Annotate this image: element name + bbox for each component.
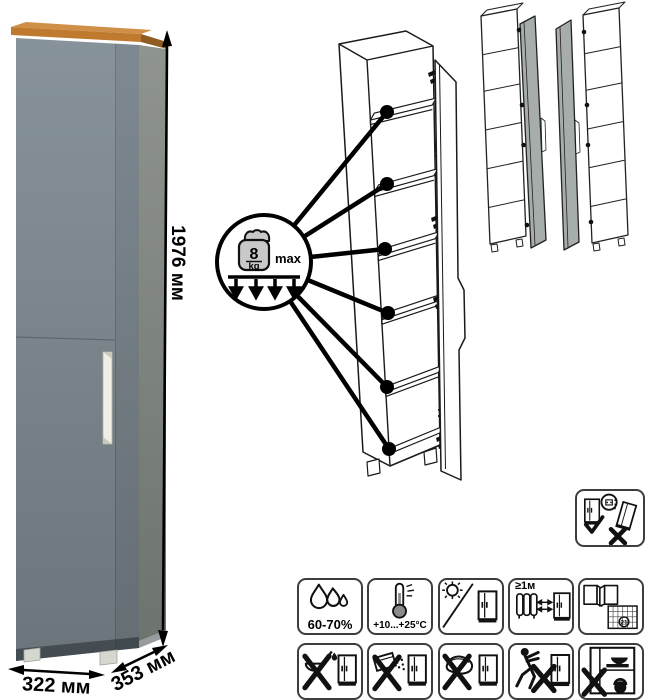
sun-icon — [440, 580, 502, 633]
kettlebell-body — [614, 681, 626, 693]
icon-tile-humidity: 60-70% — [297, 578, 363, 635]
scouring-pad-crossed-icon — [440, 645, 502, 698]
load-qualifier: max — [275, 251, 302, 266]
icon-tile-ventilation: 21 — [578, 578, 644, 635]
cabinet-foot — [24, 648, 40, 662]
cabinet-open-drawing — [339, 31, 465, 480]
door-variant-drawings — [481, 2, 628, 252]
icon-tile-no-overloading — [578, 643, 644, 700]
variant-door-handle — [541, 118, 546, 152]
wardrobe-glyph — [479, 591, 497, 622]
wardrobe-glyph — [479, 655, 496, 685]
wardrobe-glyph — [551, 655, 569, 686]
cabinet-foot — [100, 650, 117, 665]
width-arrowhead-left — [8, 665, 24, 675]
variant-door-right — [481, 3, 546, 252]
door-handle — [103, 352, 112, 444]
front-right-stile — [116, 43, 139, 650]
height-dimension-label: 1976 мм — [167, 225, 188, 301]
open-windows-calendar-icon: 21 — [580, 580, 642, 633]
variant-door-left — [556, 2, 628, 251]
icon-tile-temperature: +10...+25°C — [367, 578, 433, 635]
cabinet-side-panel — [139, 45, 166, 641]
calendar-day-label: 21 — [620, 619, 628, 626]
wardrobe-glyph — [408, 655, 425, 685]
height-arrowhead-top — [162, 30, 172, 47]
person-pushing-crossed-icon — [510, 645, 572, 698]
drawing-foot — [367, 459, 380, 476]
open-door — [435, 60, 465, 480]
wall-anchor-check-icon — [577, 491, 643, 545]
width-dimension-label: 322 мм — [22, 673, 92, 699]
cross-out-x — [305, 656, 329, 688]
wardrobe-glyph — [338, 655, 355, 685]
variant-door-handle — [575, 120, 580, 154]
humidity-label: 60-70% — [299, 617, 361, 632]
icon-tile-no-harsh-scrubbing — [438, 643, 504, 700]
icon-tile-no-direct-sunlight — [438, 578, 504, 635]
depth-dimension-label: 353 мм — [108, 645, 179, 696]
icon-tile-no-dragging — [508, 643, 574, 700]
icon-tile-no-abrasive-powders — [367, 643, 433, 700]
product-diagram: 1976 мм 322 мм 353 мм — [0, 0, 648, 700]
cabinet-photo — [11, 22, 167, 665]
wardrobe-glyph — [554, 593, 570, 620]
load-unit: kg — [248, 261, 259, 272]
ladle-drop-crossed-icon — [299, 645, 361, 698]
overloaded-cabinet-crossed-icon — [580, 645, 642, 698]
width-arrowhead-right — [89, 670, 105, 679]
temperature-label: +10...+25°C — [369, 620, 431, 631]
icon-tile-secure-to-wall — [575, 489, 645, 547]
powder-box-crossed-icon — [369, 645, 431, 698]
heat-distance-label: ≥1м — [515, 580, 535, 592]
icon-tile-heat-distance: ≥1м — [508, 578, 574, 635]
icon-tile-no-aggressive-liquids — [297, 643, 363, 700]
